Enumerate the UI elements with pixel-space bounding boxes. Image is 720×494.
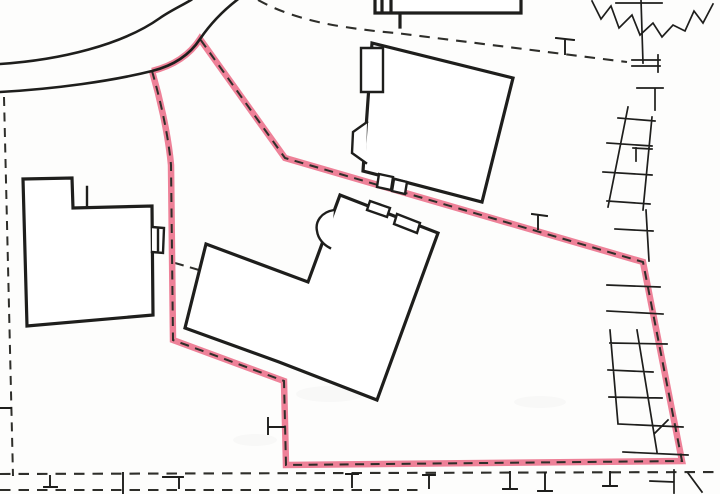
site-plan-map [0,0,720,494]
site-plan-page [0,0,720,494]
